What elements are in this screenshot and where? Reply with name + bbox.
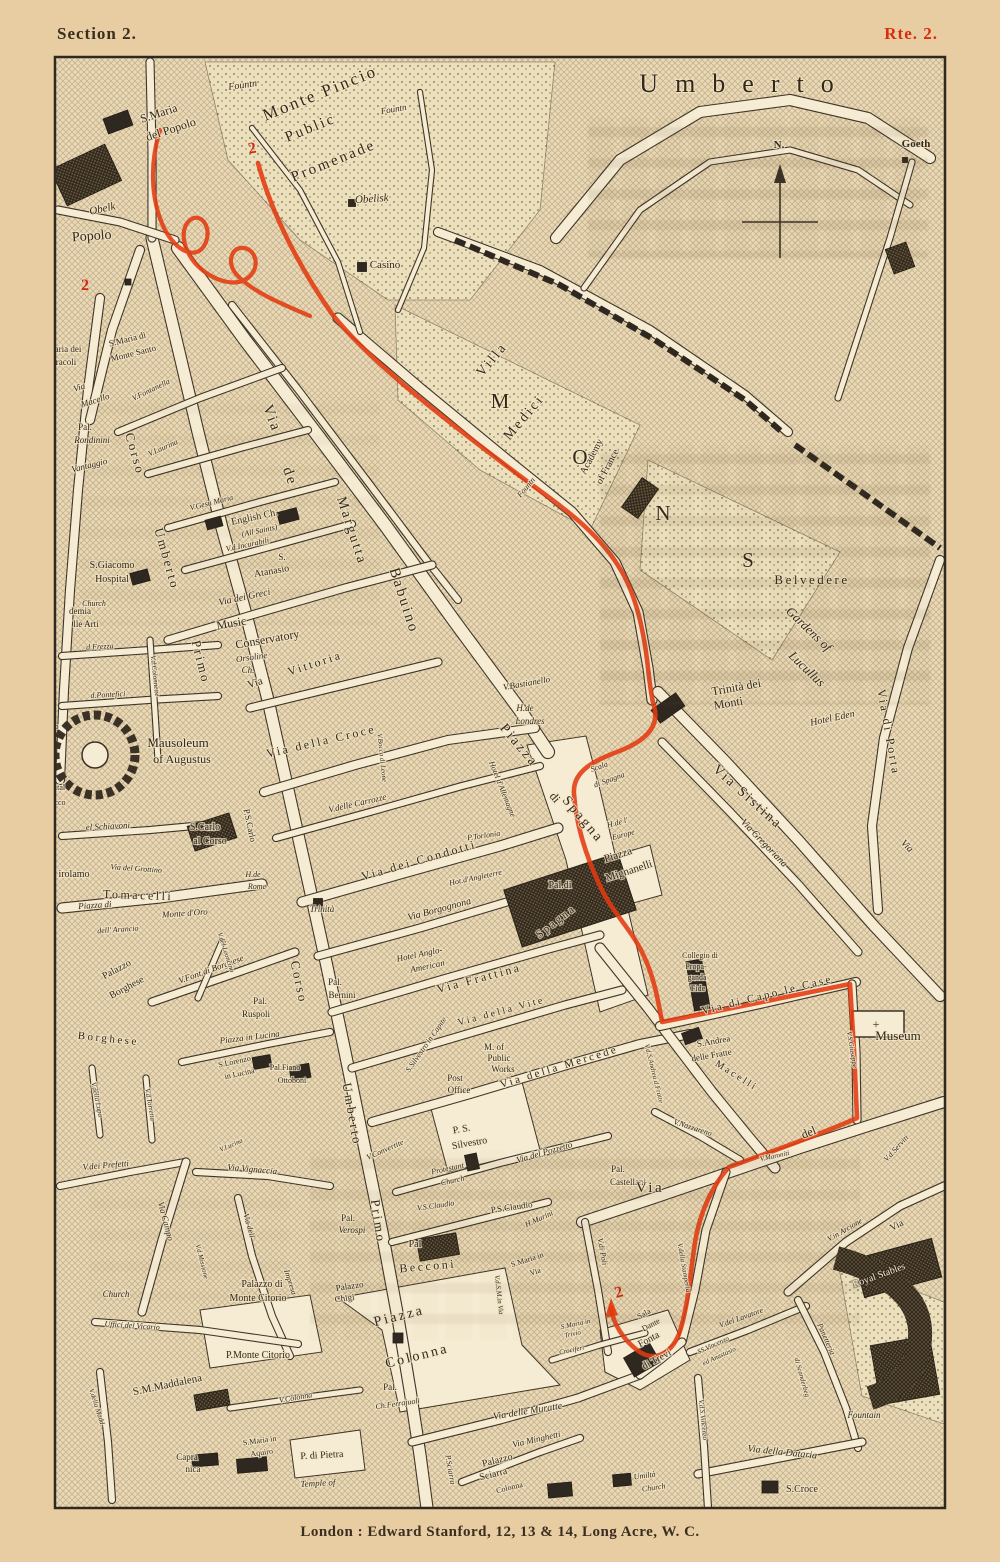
map-label: of Augustus <box>153 752 211 766</box>
map-label: Popolo <box>71 228 112 246</box>
map-label: d.Frezza <box>86 641 114 651</box>
map-label: occo <box>50 798 65 807</box>
map-label: H.de <box>244 870 261 879</box>
map-label: Temple of <box>300 1477 337 1489</box>
map-label: Rome <box>247 882 267 891</box>
dark-building <box>613 1473 632 1487</box>
map-label: orto <box>46 722 59 731</box>
map-label: Tomacelli <box>103 887 174 903</box>
map-label: Hospital <box>95 574 129 585</box>
map-label: Pal.Fiano <box>270 1063 300 1072</box>
map-label: d.Pontefici <box>90 689 125 700</box>
map-label: Via <box>636 1180 664 1196</box>
map-label: N. <box>774 139 785 151</box>
map-label: Verospi <box>339 1225 366 1235</box>
map-label: ganda <box>687 973 707 982</box>
map-label: P.Monte Citorio <box>226 1350 290 1361</box>
map-label: Trinità <box>310 904 335 914</box>
map-label: Ottoboni <box>278 1076 307 1085</box>
map-label: S.Carlo <box>190 822 220 833</box>
map-label: H.de <box>515 703 533 713</box>
map-label: Mausoleum <box>147 735 208 750</box>
map-label: pital <box>51 783 66 792</box>
map-label: S. <box>278 552 285 562</box>
map-label: S.Croce <box>786 1484 819 1495</box>
dark-building <box>762 1481 778 1493</box>
dark-building <box>358 263 367 272</box>
map-label: Post <box>447 1073 463 1083</box>
map-label: Palazzo di <box>241 1279 283 1290</box>
map-label: Umberto <box>639 69 850 98</box>
map-label: Collegio di <box>682 951 719 960</box>
map-label: Belvedere <box>774 572 849 587</box>
map-label: demia <box>69 606 91 616</box>
route-marker-2: 2 <box>81 277 89 294</box>
map-label: Bernini <box>329 990 356 1000</box>
map-label: Pal. <box>328 977 342 987</box>
map-label: Pal. <box>383 1382 397 1392</box>
map-label: Pal. <box>78 422 92 432</box>
map-label: Office <box>448 1085 471 1095</box>
map-label: Works <box>491 1064 515 1074</box>
map-label: aria dei <box>55 344 82 354</box>
map-label: nica <box>186 1464 201 1474</box>
dark-building <box>125 279 131 285</box>
dark-building <box>547 1482 572 1498</box>
map-label: N <box>655 501 670 525</box>
map-label: Ch. <box>242 665 255 675</box>
map-label: Obelisk <box>355 192 390 206</box>
map-label: Londres <box>514 716 545 726</box>
dark-building <box>393 1333 403 1343</box>
map-label: Capra <box>176 1452 198 1462</box>
map-label: Propa- <box>685 962 707 971</box>
map-label: P. di Pietra <box>300 1449 344 1462</box>
map-label: tro <box>46 709 55 718</box>
map-label: Rondinini <box>73 435 110 445</box>
scanned-map-page: { "page": { "section_label": "Section 2.… <box>0 0 1000 1562</box>
map-label: Pal <box>409 1239 422 1250</box>
rome-map: FountnS.Mariadel PopoloMonte PincioPubli… <box>0 0 1000 1562</box>
map-label: M <box>491 389 510 413</box>
map-label: irolamo <box>58 869 89 880</box>
street <box>150 62 152 238</box>
map-label: Ruspoli <box>242 1009 271 1019</box>
map-label: Museum <box>875 1028 921 1043</box>
map-label: S.Giacomo <box>90 560 135 571</box>
publisher-imprint: London : Edward Stanford, 12, 13 & 14, L… <box>0 1524 1000 1541</box>
map-label: Church <box>103 1289 130 1299</box>
map-label: racoli <box>56 357 77 367</box>
map-label: Monte Citorio <box>230 1293 287 1304</box>
map-label: Fountain <box>847 1410 881 1420</box>
map-label: Public <box>487 1053 510 1063</box>
mausoleum-inner <box>82 742 108 768</box>
dark-building <box>903 158 908 163</box>
dark-building <box>236 1457 267 1474</box>
map-label: Pal. <box>253 996 267 1006</box>
map-label: M. of <box>484 1042 504 1052</box>
map-label: + <box>873 1017 880 1031</box>
map-label: lle Arti <box>73 619 99 629</box>
map-label: Pal. <box>341 1213 355 1223</box>
map-label: S <box>742 548 754 572</box>
map-label: Goeth <box>902 138 931 150</box>
map-label: Casino <box>370 259 401 271</box>
map-label: Fide <box>691 984 706 993</box>
map-label: Pal.di <box>548 880 571 891</box>
map-label: al Corso <box>193 836 227 847</box>
map-label: Pal. <box>611 1164 625 1174</box>
page: Section 2. Rte. 2. <box>0 0 1000 1562</box>
